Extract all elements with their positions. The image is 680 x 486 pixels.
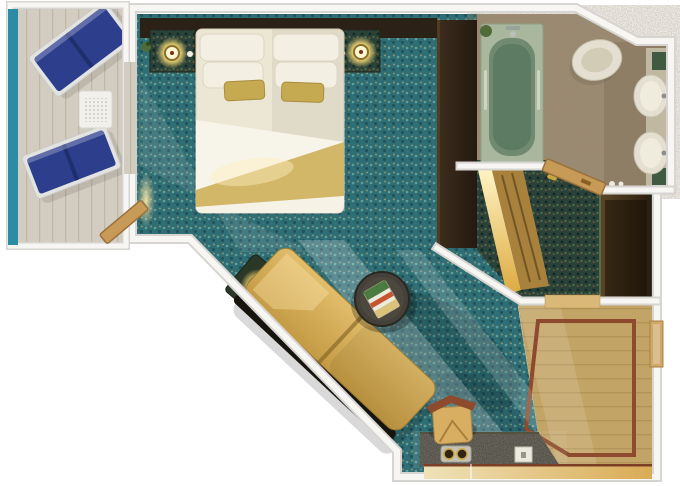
lamp-finial <box>170 51 174 55</box>
pillow <box>200 34 264 61</box>
sink-basin <box>640 138 662 168</box>
pillow <box>273 34 339 61</box>
entry-door <box>650 321 663 367</box>
balcony-table <box>79 91 112 128</box>
lamp-switch <box>187 51 193 57</box>
desk-front-seam <box>470 464 472 479</box>
floor-plan-canvas <box>0 0 680 486</box>
faucet-icon <box>662 94 667 99</box>
closet-interior <box>605 200 647 296</box>
accent-pillow <box>281 82 324 102</box>
bathtub <box>480 24 543 165</box>
curtain-glow <box>137 172 155 228</box>
sink-top <box>634 75 668 117</box>
desk-front <box>424 464 652 479</box>
counter-green-top <box>652 52 668 70</box>
tub-faucet <box>506 26 520 30</box>
tub-rail <box>537 70 540 110</box>
table-hole-grid <box>85 98 107 122</box>
notepad-mark <box>521 452 526 458</box>
sink-bottom <box>634 132 668 174</box>
cup-icon <box>457 449 467 459</box>
faucet-icon <box>662 151 667 156</box>
divider-edge-highlight <box>437 20 440 248</box>
divider-wardrobe-wall <box>437 20 477 248</box>
tub-basin <box>493 44 531 150</box>
accent-pillow <box>224 80 265 101</box>
plant-leaf <box>146 42 150 46</box>
tub-rail <box>484 70 487 110</box>
floor-plan-svg <box>0 0 680 486</box>
king-bed <box>196 29 344 213</box>
desk-front-trim <box>424 464 652 467</box>
entry-door-panel <box>653 324 660 364</box>
lamp-finial <box>359 50 363 54</box>
threshold <box>545 295 600 308</box>
cup-icon <box>444 449 454 459</box>
plant-icon <box>480 25 492 37</box>
sink-basin <box>640 81 662 111</box>
tub-faucet-head <box>510 31 516 37</box>
balcony-railing <box>8 9 18 245</box>
coffee-tray <box>441 446 471 462</box>
notepad <box>515 447 532 462</box>
balcony-door-opening <box>124 62 137 174</box>
